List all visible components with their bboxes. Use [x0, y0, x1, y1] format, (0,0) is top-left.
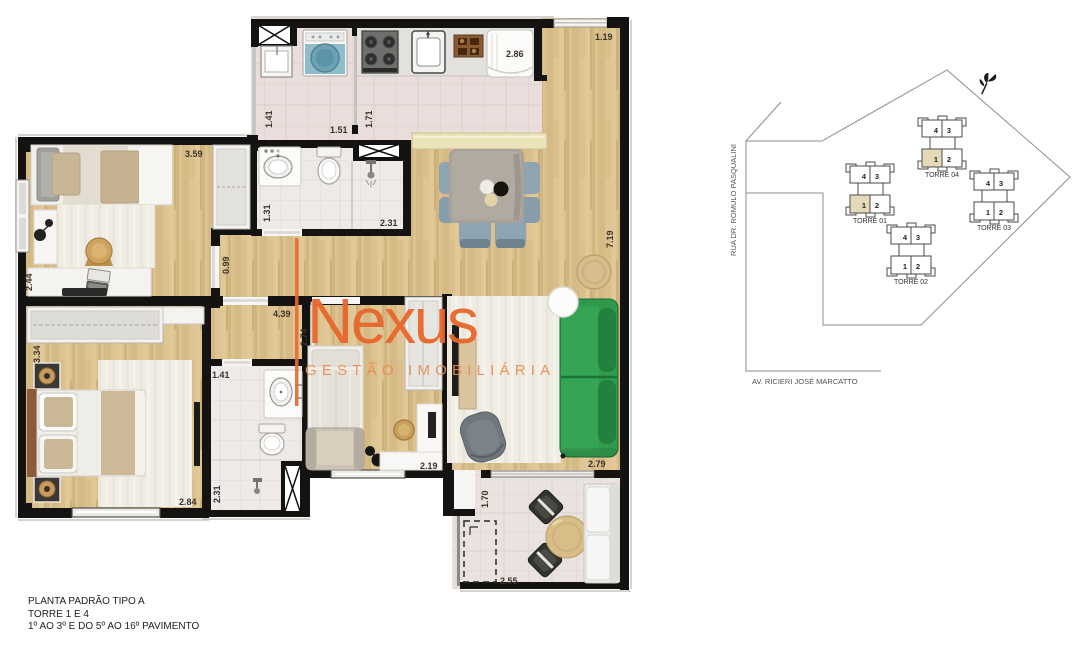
- svg-text:1.71: 1.71: [364, 110, 374, 128]
- svg-text:1: 1: [903, 262, 907, 271]
- svg-text:2.79: 2.79: [588, 459, 606, 469]
- svg-text:1.41: 1.41: [212, 370, 230, 380]
- svg-text:1º AO 3º E DO 5º AO 16º PAVIME: 1º AO 3º E DO 5º AO 16º PAVIMENTO: [28, 621, 200, 632]
- svg-text:TORRE 02: TORRE 02: [894, 279, 928, 286]
- svg-text:2.19: 2.19: [420, 461, 438, 471]
- svg-text:TORRE 03: TORRE 03: [977, 225, 1011, 232]
- svg-text:RUA DR. ROMULO PASQUALINI: RUA DR. ROMULO PASQUALINI: [729, 144, 738, 256]
- svg-text:0.99: 0.99: [221, 256, 231, 274]
- svg-text:TORRE 04: TORRE 04: [925, 172, 959, 179]
- svg-text:PLANTA PADRÃO TIPO A: PLANTA PADRÃO TIPO A: [28, 594, 145, 607]
- svg-text:2: 2: [947, 155, 951, 164]
- svg-text:3.59: 3.59: [185, 149, 203, 159]
- svg-text:3: 3: [875, 172, 879, 181]
- svg-text:GESTÃO IMOBILIÁRIA: GESTÃO IMOBILIÁRIA: [305, 362, 555, 379]
- svg-text:1.70: 1.70: [480, 490, 490, 508]
- svg-text:1.41: 1.41: [264, 110, 274, 128]
- svg-text:1: 1: [862, 201, 866, 210]
- svg-text:Nexus: Nexus: [307, 285, 479, 357]
- svg-text:2: 2: [875, 201, 879, 210]
- svg-text:2.86: 2.86: [506, 49, 524, 59]
- svg-text:TORRE 1 E 4: TORRE 1 E 4: [28, 609, 89, 620]
- svg-text:1.19: 1.19: [595, 32, 613, 42]
- svg-text:1.31: 1.31: [262, 204, 272, 222]
- svg-text:1: 1: [986, 208, 990, 217]
- svg-text:4.39: 4.39: [273, 309, 291, 319]
- svg-text:2: 2: [916, 262, 920, 271]
- svg-text:AV. RICIERI JOSÉ MARCATTO: AV. RICIERI JOSÉ MARCATTO: [752, 377, 858, 386]
- svg-text:7.19: 7.19: [605, 230, 615, 248]
- svg-text:TORRE 01: TORRE 01: [853, 218, 887, 225]
- svg-text:3: 3: [999, 179, 1003, 188]
- svg-text:3: 3: [916, 233, 920, 242]
- svg-text:2.31: 2.31: [212, 485, 222, 503]
- svg-text:3: 3: [947, 126, 951, 135]
- svg-text:2.31: 2.31: [380, 218, 398, 228]
- svg-text:1.51: 1.51: [330, 125, 348, 135]
- svg-text:2: 2: [999, 208, 1003, 217]
- svg-text:1: 1: [934, 155, 938, 164]
- svg-text:2.55: 2.55: [500, 576, 518, 586]
- svg-text:2.44: 2.44: [24, 273, 34, 291]
- svg-text:2.84: 2.84: [179, 497, 197, 507]
- svg-text:3.34: 3.34: [32, 345, 42, 363]
